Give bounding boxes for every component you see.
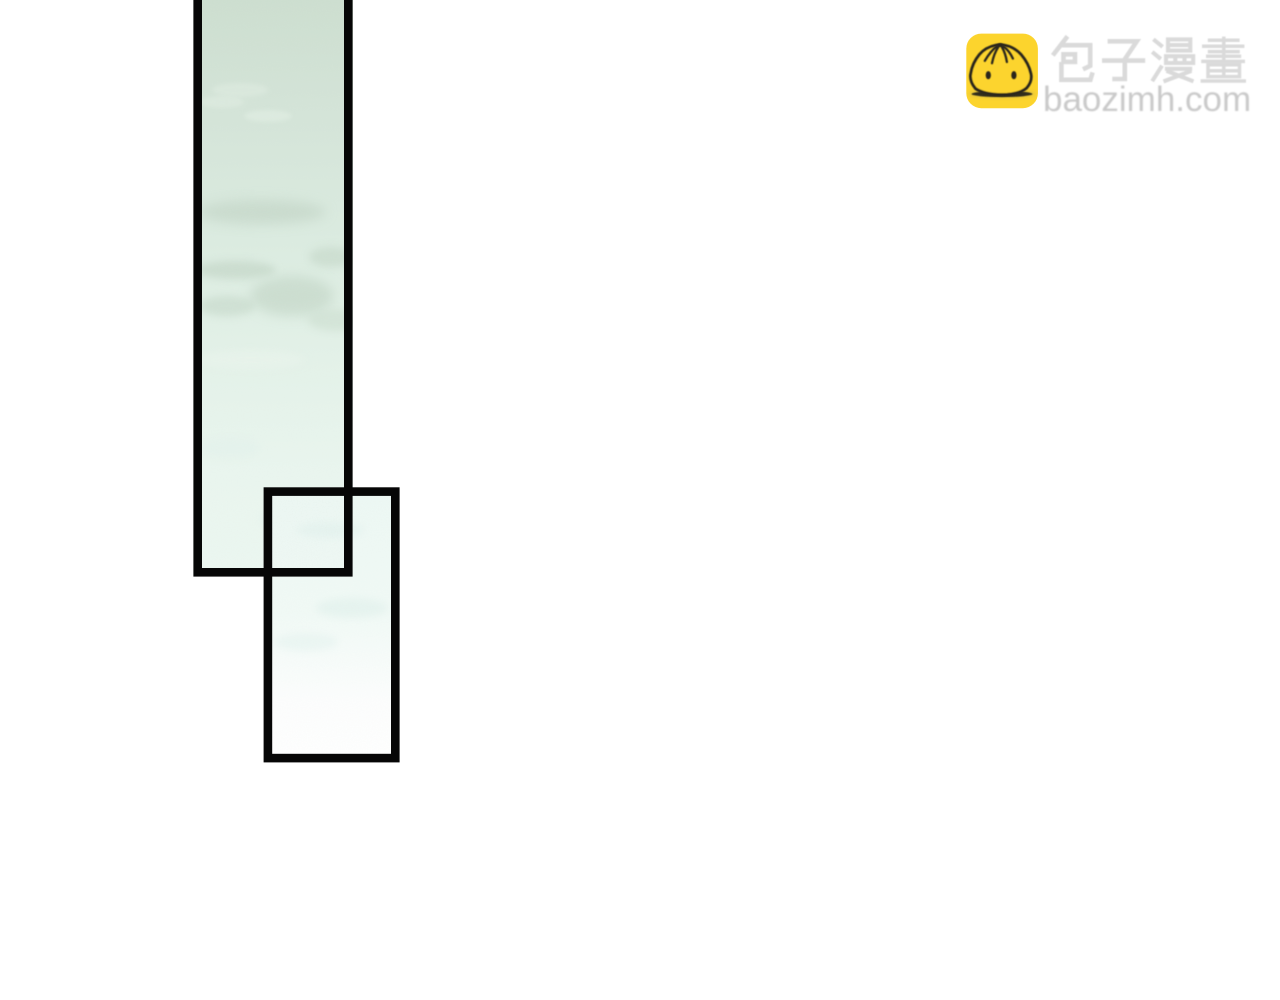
svg-text:baozimh.com: baozimh.com bbox=[1043, 80, 1251, 119]
